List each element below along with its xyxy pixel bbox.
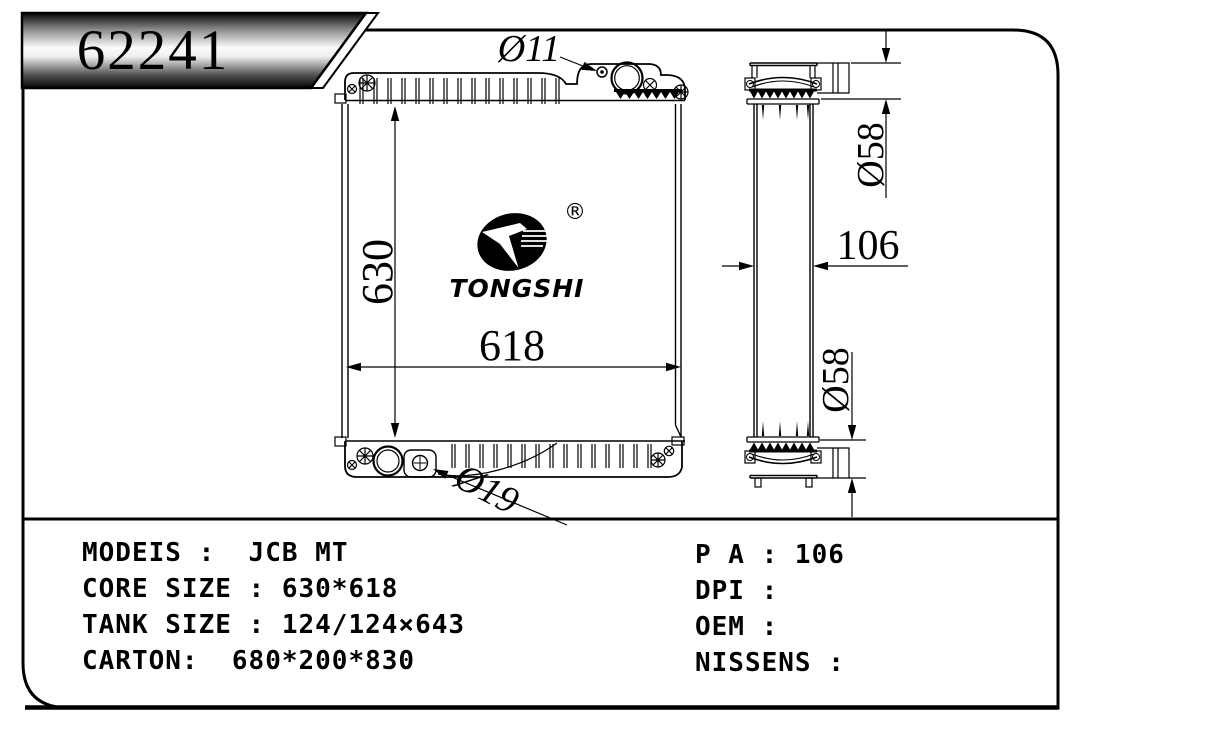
arrowhead-icon <box>391 423 399 438</box>
tube-ends <box>762 421 809 436</box>
spec-label: DPI : <box>695 576 795 606</box>
side-top-tank <box>745 63 849 120</box>
arrowhead-icon <box>848 425 856 440</box>
part-number: 62241 <box>77 19 230 82</box>
screw-icon <box>348 75 376 94</box>
arrowhead-icon <box>666 363 681 371</box>
arrowhead-icon <box>391 106 399 121</box>
dimension-core-width: 618 <box>346 321 681 371</box>
spec-label: MODEIS : <box>82 538 249 568</box>
dimension-top-pipe: Ø58 <box>821 30 901 198</box>
registered-mark: ® <box>564 200 586 225</box>
screw-icon <box>348 448 374 470</box>
side-top-serration <box>749 89 817 99</box>
part-number-banner: 62241 <box>22 13 378 88</box>
spec-value: 106 <box>795 540 845 570</box>
dimension-core-height: 630 <box>353 106 402 438</box>
side-core-column <box>754 104 813 437</box>
spec-row-model: MODEIS : JCB MT <box>82 538 348 568</box>
spec-label: NISSENS : <box>695 648 862 678</box>
logo-ellipse-icon <box>471 206 553 278</box>
dimension-depth: 106 <box>722 223 908 270</box>
screw-icon <box>651 446 674 467</box>
outlet-pipe-icon <box>374 447 403 476</box>
side-bottom-flange <box>817 448 849 478</box>
spec-label: CORE SIZE : <box>82 574 282 604</box>
spec-value: JCB MT <box>249 538 349 568</box>
arrowhead-icon <box>739 262 754 270</box>
radiator-spec-sheet: 62241 <box>0 0 1212 730</box>
dim-label-106: 106 <box>837 223 900 269</box>
spec-row-carton: CARTON: 680*200*830 <box>82 646 415 676</box>
tube-ends <box>762 105 809 120</box>
front-bottom-tank <box>345 441 685 477</box>
dim-label-d58-bottom: Ø58 <box>815 347 857 412</box>
spec-label: CARTON: <box>82 646 232 676</box>
spec-row-nissens: NISSENS : <box>695 648 862 678</box>
spec-row-pa: P A : 106 <box>695 540 845 570</box>
dim-label-630: 630 <box>353 239 402 305</box>
arrowhead-icon <box>848 478 856 493</box>
dim-label-d58-top: Ø58 <box>850 122 892 187</box>
dimension-bottom-pipe: Ø58 <box>815 347 866 517</box>
spec-row-core-size: CORE SIZE : 630*618 <box>82 574 398 604</box>
spec-value: 124/124×643 <box>282 610 465 640</box>
tongshi-logo: ® TONGSHI <box>450 200 586 303</box>
drain-hole-icon <box>413 456 428 471</box>
arrowhead-icon <box>882 99 890 114</box>
filler-cap-icon <box>612 63 643 94</box>
arrowhead-icon <box>813 262 828 270</box>
spec-label: OEM : <box>695 612 795 642</box>
spec-row-dpi: DPI : <box>695 576 795 606</box>
spec-value: 680*200*830 <box>232 646 415 676</box>
radiator-side-view <box>745 63 849 487</box>
filler-hole-icon <box>597 67 607 77</box>
spec-row-oem: OEM : <box>695 612 795 642</box>
side-top-flange <box>817 63 849 93</box>
dimension-filler-hole: Ø11 <box>497 28 599 75</box>
dim-label-618: 618 <box>479 321 545 370</box>
spec-value: 630*618 <box>282 574 399 604</box>
brand-wordmark: TONGSHI <box>450 274 585 303</box>
side-bottom-tank <box>745 421 849 487</box>
arrowhead-icon <box>882 48 890 63</box>
side-bottom-serration <box>749 443 817 453</box>
spec-label: P A : <box>695 540 795 570</box>
spec-label: TANK SIZE : <box>82 610 282 640</box>
dim-label-d11: Ø11 <box>497 28 561 70</box>
spec-row-tank-size: TANK SIZE : 124/124×643 <box>82 610 465 640</box>
